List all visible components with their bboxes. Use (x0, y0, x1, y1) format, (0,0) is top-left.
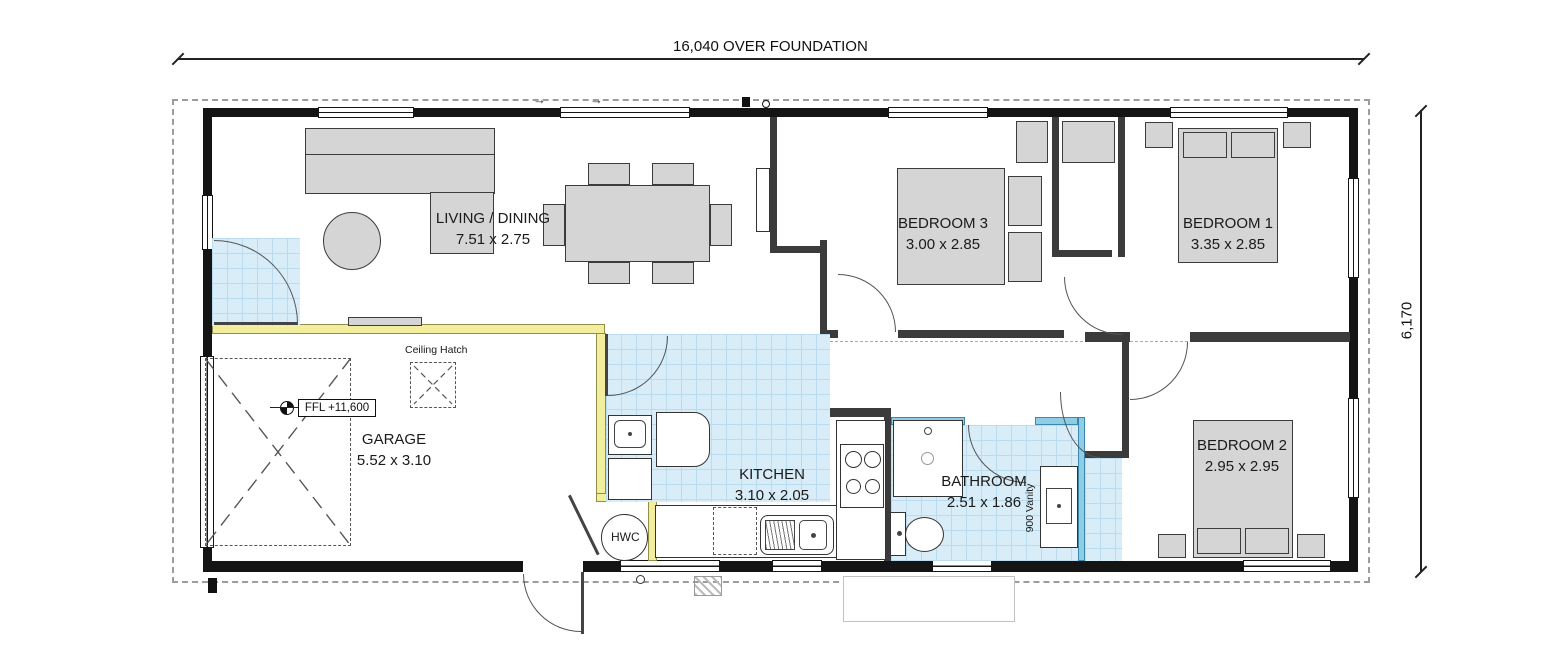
wall-robe-east (1118, 117, 1125, 257)
living-size: 7.51 x 2.75 (436, 229, 550, 250)
wall-bedroom2-west (1122, 338, 1129, 458)
south-door-swing (523, 574, 581, 632)
sink-drain (811, 533, 816, 538)
burner (846, 479, 861, 494)
robe-shelf (1062, 121, 1115, 163)
bed1-side-table (1283, 122, 1311, 148)
garage-size: 5.52 x 3.10 (357, 450, 431, 471)
bedroom2-label: BEDROOM 2 2.95 x 2.95 (1197, 435, 1287, 477)
living-name: LIVING / DINING (436, 208, 550, 229)
kitchen-name: KITCHEN (735, 464, 809, 485)
dining-table (565, 185, 710, 262)
bed1-pillow (1183, 132, 1227, 158)
window-bathroom-south (932, 560, 992, 572)
burner (865, 479, 880, 494)
wall-bedroom3-west (820, 240, 827, 338)
top-dimension-line (178, 58, 1364, 60)
bedroom3-name: BEDROOM 3 (898, 213, 988, 234)
burner (864, 451, 881, 468)
bed3-pillow (1008, 176, 1042, 226)
wall-living-hall (770, 117, 777, 252)
laundry-tub-drain (628, 432, 632, 436)
bedroom2-name: BEDROOM 2 (1197, 435, 1287, 456)
bedroom1-name: BEDROOM 1 (1183, 213, 1273, 234)
bathroom-name: BATHROOM (941, 471, 1027, 492)
coffee-table (323, 212, 381, 270)
wall-hall-north-2 (898, 330, 1064, 338)
ceiling-hatch-x (410, 362, 456, 408)
bedroom1-size: 3.35 x 2.85 (1183, 234, 1273, 255)
hwc-label: HWC (611, 530, 640, 544)
garage-clearance-x (205, 358, 351, 546)
living-label: LIVING / DINING 7.51 x 2.75 (436, 208, 550, 250)
bed1-side-table (1145, 122, 1173, 148)
wall-bedroom2-north-2 (1190, 332, 1350, 342)
south-door-leaf (581, 572, 584, 634)
bedroom1-label: BEDROOM 1 3.35 x 2.85 (1183, 213, 1273, 255)
sink-drainer (765, 520, 795, 550)
sofa-seat (305, 154, 495, 194)
window-living-2 (560, 107, 690, 118)
slider-arrow-icon: → (590, 92, 603, 107)
wall-robe-south (1052, 250, 1112, 257)
window-bedroom3 (888, 107, 988, 118)
sofa-back (305, 128, 495, 156)
bed2-pillow (1245, 528, 1289, 554)
window-kitchen-south-2 (772, 560, 822, 572)
toilet-bowl (905, 517, 944, 552)
right-dimension-line (1420, 110, 1422, 572)
south-door-opening (523, 559, 583, 573)
dishwasher (713, 507, 757, 555)
dining-chair (588, 163, 630, 185)
kitchen-size: 3.10 x 2.05 (735, 485, 809, 506)
garage-label: GARAGE 5.52 x 3.10 (357, 429, 431, 471)
wall-robe-west (1052, 117, 1059, 257)
garage-name: GARAGE (357, 429, 431, 450)
shower-head-icon (924, 427, 932, 435)
floor-plan: 16,040 OVER FOUNDATION 6,170 → → (0, 0, 1561, 650)
bedroom2-size: 2.95 x 2.95 (1197, 456, 1287, 477)
bed2-side-table (1158, 534, 1186, 558)
tap-icon (742, 97, 750, 107)
bed1-pillow (1231, 132, 1275, 158)
bathroom-label: BATHROOM 2.51 x 1.86 (941, 471, 1027, 513)
window-bedroom1-east (1348, 178, 1359, 278)
bedroom3-size: 3.00 x 2.85 (898, 234, 988, 255)
slider-arrow-icon: → (533, 92, 546, 107)
dining-chair (588, 262, 630, 284)
kitchen-label: KITCHEN 3.10 x 2.05 (735, 464, 809, 506)
right-dimension-label: 6,170 (1398, 302, 1415, 340)
vanity-drain (1057, 504, 1061, 508)
shower-drain-icon (921, 452, 934, 465)
porch-pad (843, 576, 1015, 622)
bedroom3-robe-shelf (1016, 121, 1048, 163)
hall-cupboard (756, 168, 770, 232)
tv-bench (348, 317, 422, 326)
window-bedroom2-south (1243, 560, 1331, 572)
dining-chair (710, 204, 732, 246)
bed2-pillow (1197, 528, 1241, 554)
dining-chair (652, 163, 694, 185)
hall-tiles (1085, 458, 1122, 561)
kitchen-cabinet (608, 458, 652, 500)
tap-icon (208, 578, 217, 593)
bathroom-size: 2.51 x 1.86 (941, 492, 1027, 513)
bed2-side-table (1297, 534, 1325, 558)
window-bedroom1 (1170, 107, 1288, 118)
bedroom3-label: BEDROOM 3 3.00 x 2.85 (898, 213, 988, 255)
downpipe-icon (636, 575, 645, 584)
toilet-drain (897, 531, 902, 536)
dining-chair (652, 262, 694, 284)
wall-hall-stub (770, 246, 827, 253)
window-living-1 (318, 107, 414, 118)
burner (845, 451, 862, 468)
ffl-label: FFL +11,600 (298, 399, 376, 417)
step-pad (694, 576, 722, 596)
vent-icon (762, 100, 770, 108)
window-bedroom2-east (1348, 398, 1359, 498)
bed3-pillow (1008, 232, 1042, 282)
fridge (656, 412, 710, 467)
window-kitchen-south-1 (620, 560, 720, 572)
top-dimension-label: 16,040 OVER FOUNDATION (673, 38, 868, 55)
ceiling-hatch-label: Ceiling Hatch (405, 344, 467, 356)
